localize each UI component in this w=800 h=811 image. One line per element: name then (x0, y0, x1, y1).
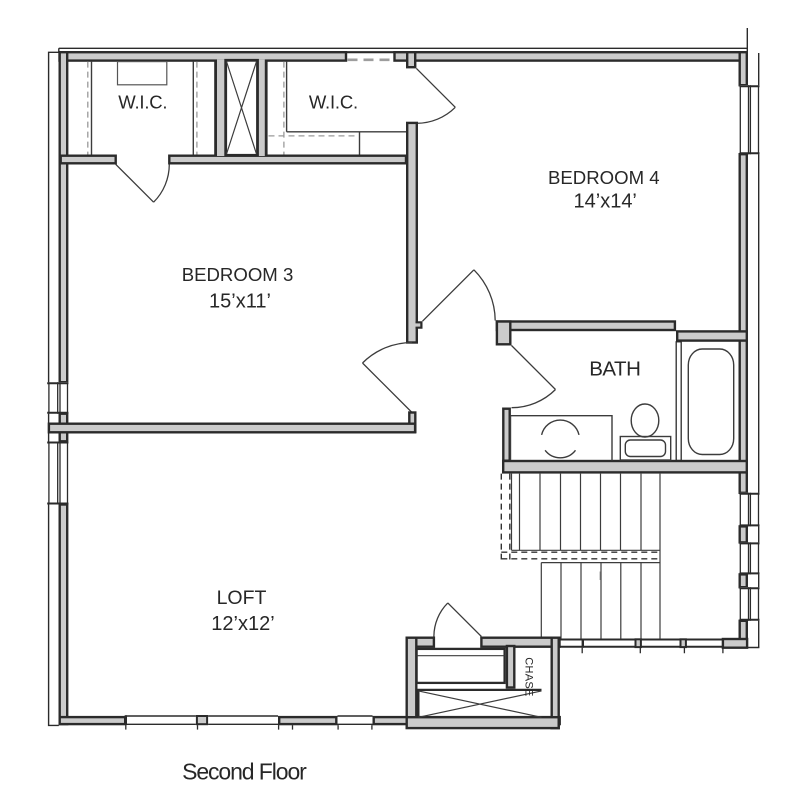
svg-text:14’x14’: 14’x14’ (574, 190, 637, 212)
svg-text:BEDROOM 4: BEDROOM 4 (548, 167, 660, 188)
svg-text:W.I.C.: W.I.C. (309, 91, 358, 112)
svg-text:LOFT: LOFT (217, 587, 267, 609)
svg-text:12’x12’: 12’x12’ (211, 613, 274, 635)
svg-text:15’x11’: 15’x11’ (209, 291, 271, 313)
svg-text:CHASE: CHASE (522, 657, 534, 696)
svg-text:BEDROOM 3: BEDROOM 3 (182, 264, 294, 285)
svg-text:Second Floor: Second Floor (182, 758, 307, 784)
svg-text:W.I.C.: W.I.C. (118, 91, 167, 112)
svg-text:BATH: BATH (589, 357, 640, 380)
